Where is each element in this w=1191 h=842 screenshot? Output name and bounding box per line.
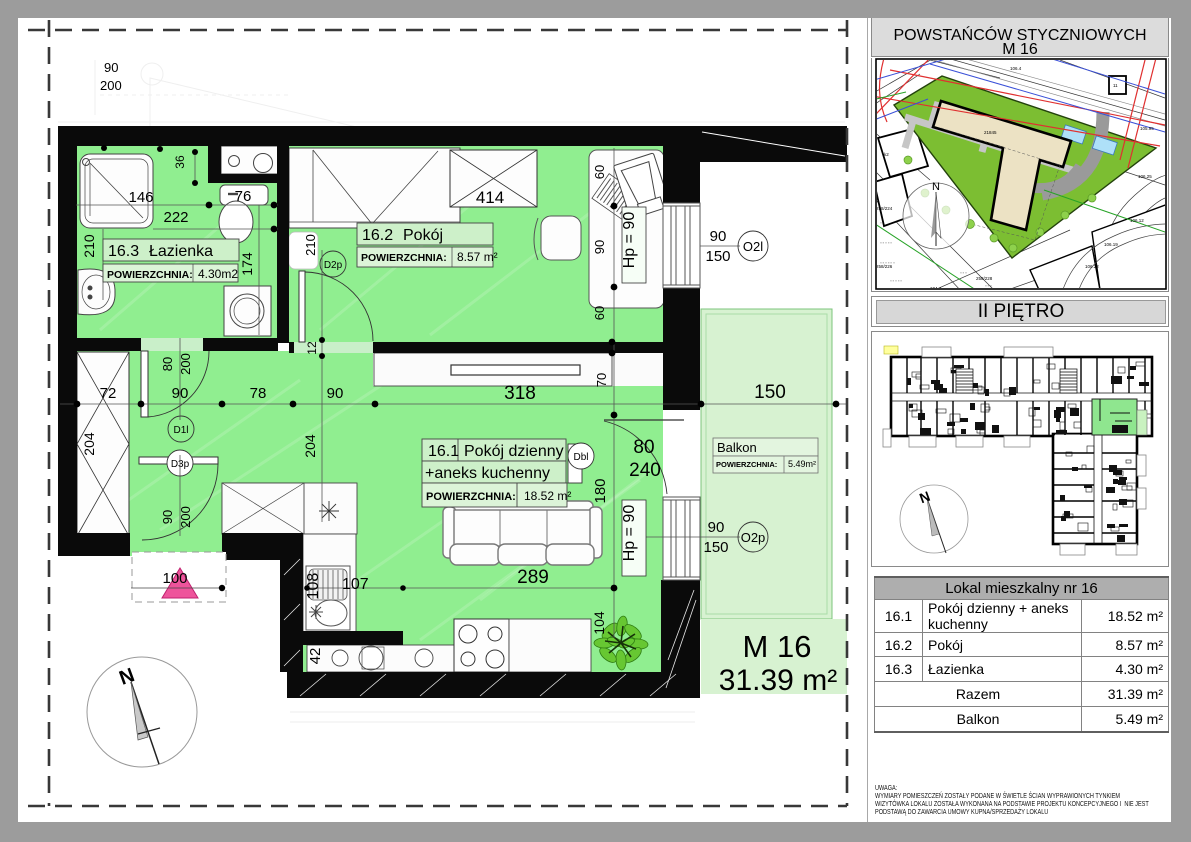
svg-text:258/224: 258/224 <box>876 206 893 211</box>
svg-text:106.22: 106.22 <box>1085 264 1099 269</box>
svg-text:106.19: 106.19 <box>1104 242 1118 247</box>
svg-text:Hp = 90: Hp = 90 <box>621 505 638 562</box>
svg-text:k2: k2 <box>884 152 889 157</box>
svg-text:146: 146 <box>128 189 153 206</box>
svg-text:80: 80 <box>160 357 175 371</box>
svg-text:210: 210 <box>81 234 97 258</box>
svg-text:16.3: 16.3 <box>108 243 139 260</box>
svg-text:222: 222 <box>163 209 188 226</box>
svg-text:90: 90 <box>710 228 727 245</box>
svg-text:POWIERZCHNIA:: POWIERZCHNIA: <box>361 252 447 264</box>
svg-text:4.30m2: 4.30m2 <box>198 267 238 281</box>
svg-text:90: 90 <box>327 385 344 402</box>
svg-text:100: 100 <box>162 570 187 587</box>
svg-text:42: 42 <box>307 648 324 665</box>
svg-text:N: N <box>932 181 940 193</box>
svg-text:90: 90 <box>172 385 189 402</box>
svg-text:200: 200 <box>178 506 193 528</box>
svg-text:204: 204 <box>302 434 318 458</box>
svg-text:12: 12 <box>305 341 319 355</box>
svg-text:200: 200 <box>100 78 122 93</box>
svg-text:31.39 m²: 31.39 m² <box>719 664 837 697</box>
svg-text:N: N <box>917 488 932 506</box>
svg-text:80: 80 <box>633 437 654 458</box>
svg-text:5.49m²: 5.49m² <box>788 459 816 469</box>
svg-text:Dbl: Dbl <box>573 452 588 463</box>
svg-text:18.52 m²: 18.52 m² <box>524 489 571 503</box>
svg-text:M 16: M 16 <box>743 629 812 664</box>
svg-text:104: 104 <box>591 611 607 635</box>
svg-text:78: 78 <box>250 385 267 402</box>
svg-text:107: 107 <box>342 576 369 593</box>
svg-text:106.25: 106.25 <box>1138 174 1152 179</box>
svg-text:90: 90 <box>592 240 607 254</box>
svg-text:POWIERZCHNIA:: POWIERZCHNIA: <box>426 491 516 503</box>
svg-text:D2p: D2p <box>324 260 343 271</box>
svg-text:+aneks kuchenny: +aneks kuchenny <box>425 465 550 482</box>
svg-text:90: 90 <box>708 519 725 536</box>
svg-text:210: 210 <box>303 234 318 256</box>
svg-text:174: 174 <box>239 252 255 276</box>
svg-text:Łazienka: Łazienka <box>149 243 213 260</box>
svg-text:90: 90 <box>104 60 118 75</box>
svg-text:Pokój: Pokój <box>403 227 443 244</box>
svg-text:36: 36 <box>173 155 187 169</box>
svg-text:150: 150 <box>705 248 730 265</box>
svg-text:'' '' '': '' '' '' <box>960 271 967 276</box>
svg-text:O2p: O2p <box>741 530 766 545</box>
svg-text:16.2: 16.2 <box>362 227 393 244</box>
svg-text:204: 204 <box>81 432 97 456</box>
svg-text:180: 180 <box>592 478 609 503</box>
svg-text:200: 200 <box>178 353 193 375</box>
svg-text:'' '' '' '' '': '' '' '' '' '' <box>880 241 892 246</box>
svg-text:76: 76 <box>235 188 252 205</box>
svg-text:150: 150 <box>703 539 728 556</box>
svg-text:POWIERZCHNIA:: POWIERZCHNIA: <box>107 269 193 281</box>
svg-text:POWIERZCHNIA:: POWIERZCHNIA: <box>716 460 777 469</box>
svg-text:289: 289 <box>517 567 549 588</box>
svg-text:72: 72 <box>100 385 117 402</box>
svg-text:318: 318 <box>504 383 536 404</box>
svg-text:150: 150 <box>754 382 786 403</box>
svg-text:21845: 21845 <box>984 130 997 135</box>
svg-text:8.57 m²: 8.57 m² <box>457 250 498 264</box>
svg-text:90: 90 <box>160 510 175 524</box>
svg-text:O2l: O2l <box>743 239 763 254</box>
svg-text:106.4: 106.4 <box>1010 66 1022 71</box>
svg-text:258/228: 258/228 <box>976 276 993 281</box>
svg-text:16.1: 16.1 <box>428 443 459 460</box>
svg-text:105.95: 105.95 <box>1140 126 1154 131</box>
svg-text:106.12: 106.12 <box>1130 218 1144 223</box>
svg-text:60: 60 <box>592 306 607 320</box>
svg-text:414: 414 <box>476 188 504 207</box>
svg-text:Balkon: Balkon <box>717 440 757 455</box>
svg-text:Pokój dzienny: Pokój dzienny <box>464 443 564 460</box>
svg-text:60: 60 <box>592 165 607 179</box>
svg-text:108: 108 <box>305 573 322 600</box>
svg-text:'' '' '' '' '': '' '' '' '' '' <box>890 279 902 284</box>
svg-text:Hp = 90: Hp = 90 <box>621 212 638 269</box>
svg-text:70: 70 <box>594 373 609 387</box>
svg-text:D1l: D1l <box>173 425 188 436</box>
svg-text:11: 11 <box>1113 83 1118 88</box>
svg-text:258/226: 258/226 <box>876 264 893 269</box>
svg-text:240: 240 <box>629 460 661 481</box>
